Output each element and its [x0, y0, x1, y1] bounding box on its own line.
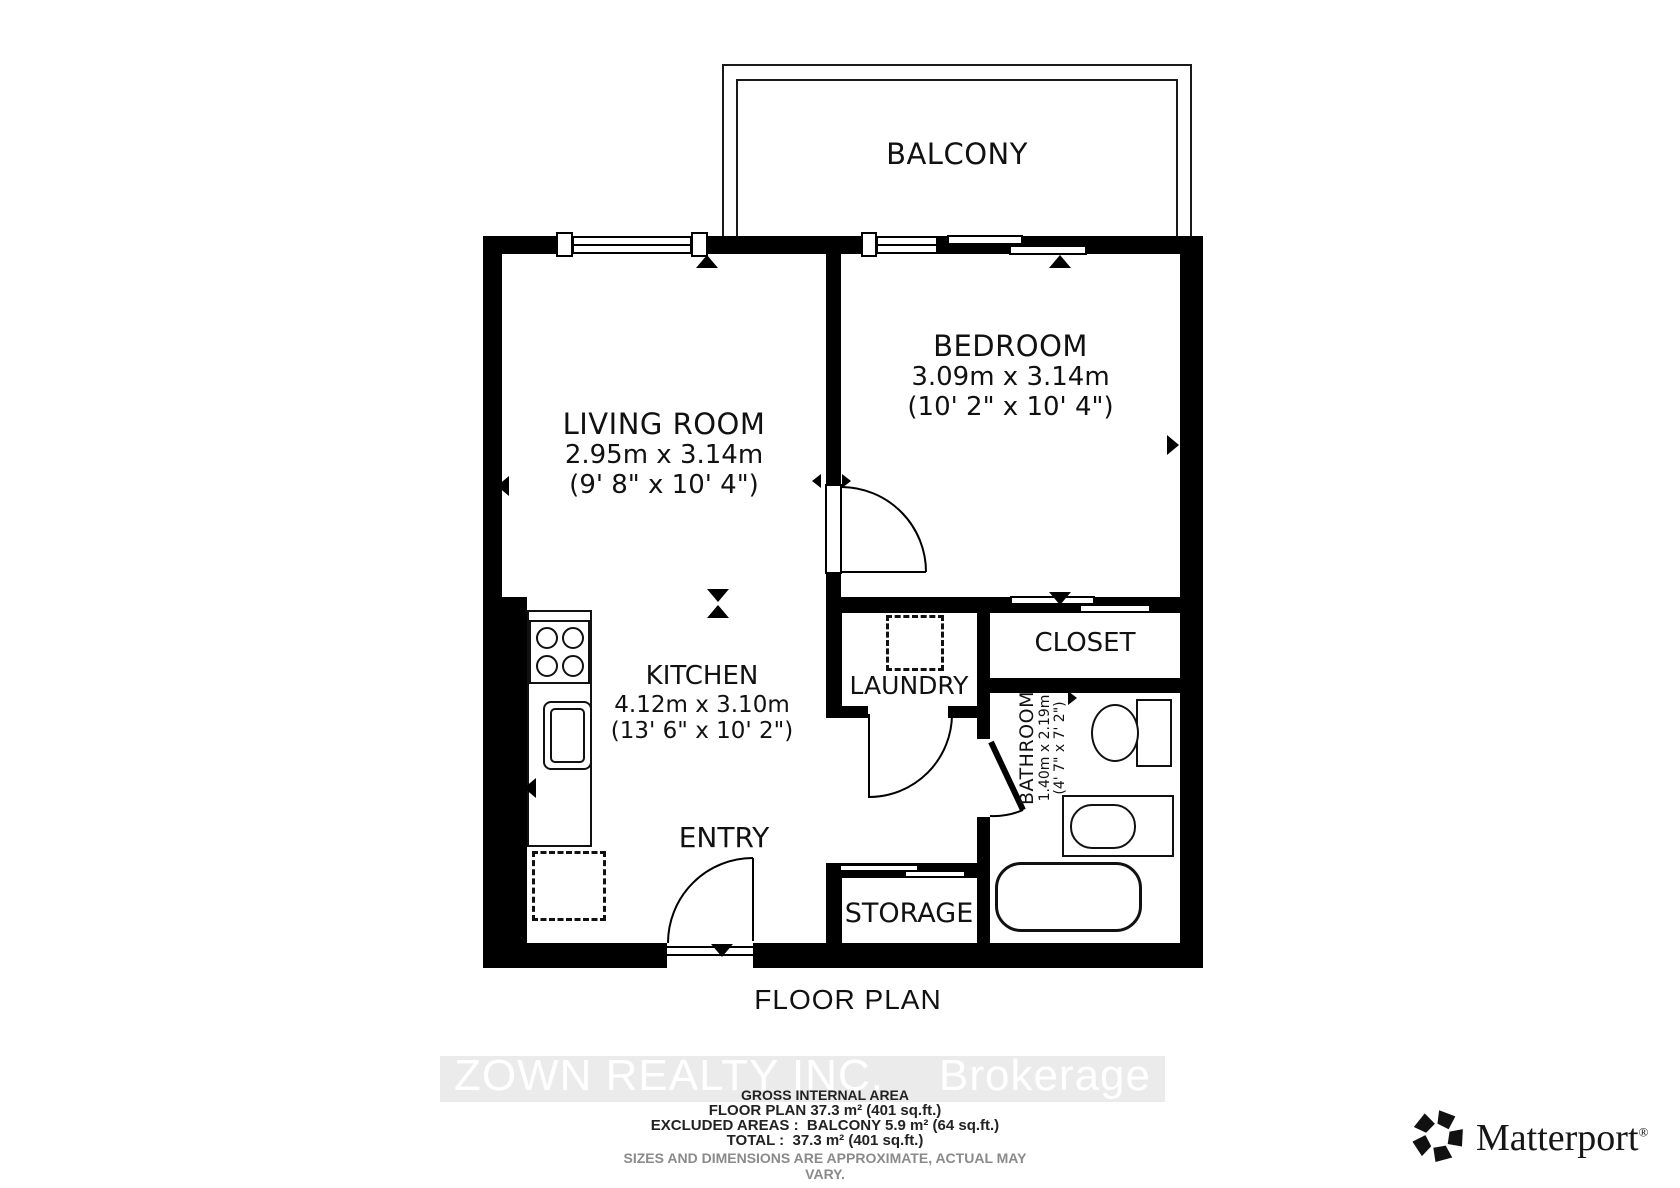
living-window — [572, 236, 692, 254]
summary-floor-plan: FLOOR PLAN 37.3 m² (401 sq.ft.) — [615, 1103, 1035, 1118]
summary-excluded: EXCLUDED AREAS : BALCONY 5.9 m² (64 sq.f… — [615, 1118, 1035, 1133]
marker-up-balcony-door-icon — [1049, 255, 1071, 268]
entry-door-arc — [668, 858, 753, 943]
marker-up-living-window-icon — [696, 255, 718, 268]
marker-down-mid-icon — [707, 589, 729, 602]
living-window-cap-right — [691, 232, 708, 257]
marker-bathroom-sink-icon — [1068, 691, 1077, 705]
marker-bedroom-door-right-icon — [842, 474, 851, 488]
matterport-wordmark: Matterport® — [1476, 1116, 1648, 1160]
summary-heading: GROSS INTERNAL AREA — [615, 1088, 1035, 1103]
bedroom-door-arc — [842, 487, 926, 572]
balcony-sliding-door-panel-a — [947, 235, 1023, 245]
balcony-label: BALCONY — [722, 138, 1192, 171]
burner-2-icon — [562, 627, 584, 649]
living-room-label: LIVING ROOM 2.95m x 3.14m (9' 8" x 10' 4… — [502, 408, 826, 501]
laundry-label: LAUNDRY — [842, 672, 976, 701]
entry-threshold-line-1 — [667, 946, 753, 948]
storage-label: STORAGE — [842, 898, 976, 929]
marker-right-bedroom-wall-icon — [1167, 435, 1179, 455]
burner-3-icon — [536, 655, 558, 677]
matterport-branding: Matterport® — [1410, 1108, 1648, 1168]
bathroom-door-opening — [975, 739, 992, 817]
dishwasher-box — [532, 851, 606, 921]
summary-total: TOTAL : 37.3 m² (401 sq.ft.) — [615, 1133, 1035, 1148]
balcony-sliding-door-panel-b — [1009, 245, 1087, 255]
summary-disclaimer: SIZES AND DIMENSIONS ARE APPROXIMATE, AC… — [615, 1150, 1035, 1182]
bedroom-window-cap-left — [861, 232, 877, 257]
matterport-pinwheel-icon — [1410, 1108, 1466, 1168]
floor-plan-title: FLOOR PLAN — [698, 984, 998, 1016]
marker-left-living-wall-icon — [497, 476, 509, 496]
storage-sliding-door-panel-b — [904, 870, 966, 878]
entry-threshold-line-2 — [667, 954, 753, 956]
wall-right — [1180, 236, 1203, 968]
marker-bedroom-door-left-icon — [812, 474, 821, 488]
registered-mark: ® — [1639, 1124, 1649, 1139]
bathtub — [995, 862, 1142, 932]
closet-sliding-door-panel-b — [1079, 604, 1151, 613]
entry-label: ENTRY — [639, 822, 809, 854]
floor-plan-canvas: BALCONY — [0, 0, 1680, 1188]
vanity-sink-basin — [1070, 804, 1136, 849]
laundry-door-arc — [869, 714, 952, 797]
bedroom-window — [876, 236, 938, 254]
marker-left-kitchen-wall-icon — [524, 778, 536, 798]
marker-up-mid-icon — [707, 605, 729, 618]
living-window-cap-left — [556, 232, 573, 257]
closet-label: CLOSET — [990, 629, 1180, 659]
wall-storage-left — [826, 863, 842, 943]
washer-dryer-box — [886, 615, 944, 671]
toilet-tank — [1136, 699, 1172, 767]
wall-bottom — [483, 943, 1203, 968]
burner-1-icon — [536, 627, 558, 649]
bedroom-door-jamb — [825, 484, 842, 574]
bedroom-label: BEDROOM 3.09m x 3.14m (10' 2" x 10' 4") — [841, 330, 1180, 423]
toilet-bowl — [1091, 704, 1139, 762]
marker-down-closet-door-icon — [1049, 592, 1071, 605]
kitchen-label: KITCHEN 4.12m x 3.10m (13' 6" x 10' 2") — [560, 662, 844, 745]
area-summary: GROSS INTERNAL AREA FLOOR PLAN 37.3 m² (… — [615, 1088, 1035, 1182]
marker-down-entry-icon — [711, 944, 733, 957]
wall-left-kitchen-thick — [483, 597, 527, 943]
